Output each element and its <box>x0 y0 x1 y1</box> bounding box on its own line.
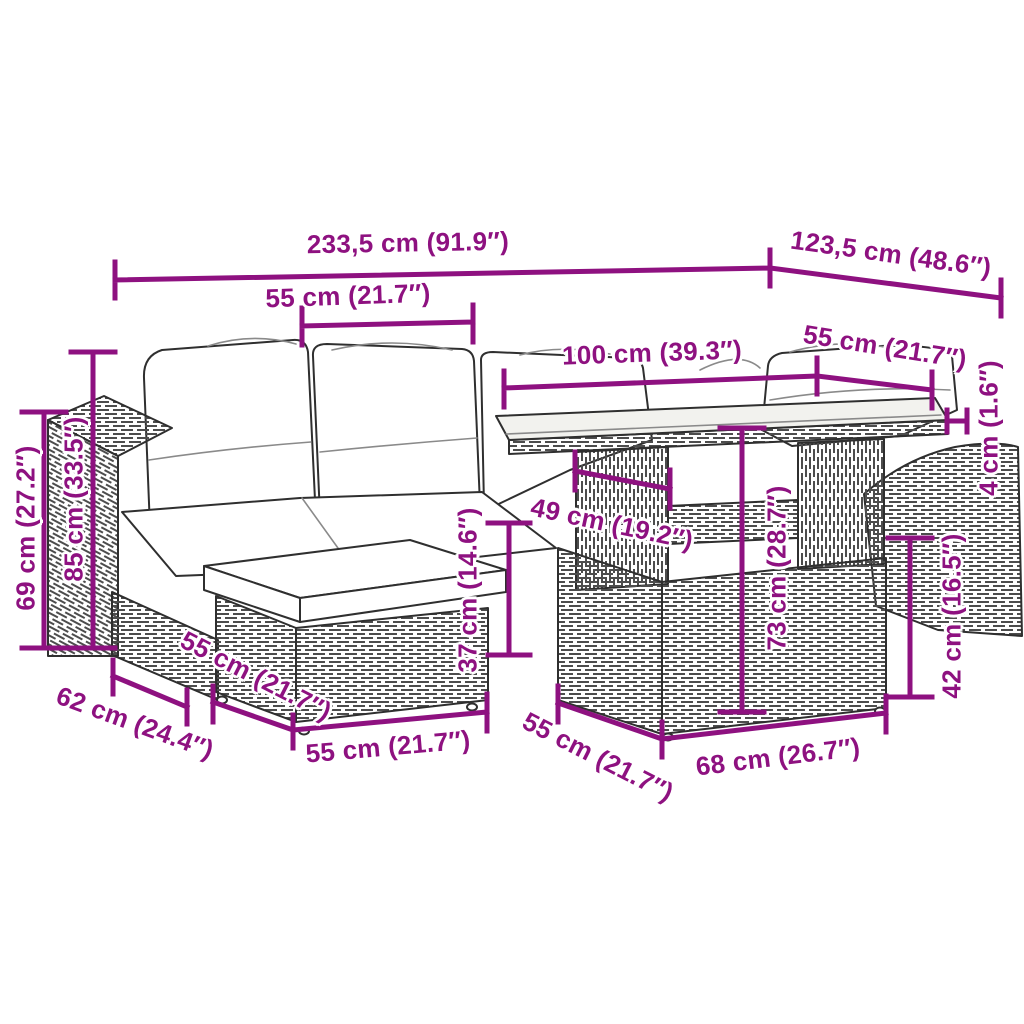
dim-label-seat-width-top: 55 cm (21.7″) <box>265 278 431 315</box>
dim-label-bench-depth: 55 cm (21.7″) <box>517 706 678 809</box>
dim-label-total-depth: 123,5 cm (48.6″) <box>789 225 994 284</box>
dim-label-tabletop-thickness: 4 cm (1.6″) <box>974 360 1005 496</box>
dim-label-back-height: 85 cm (33.5″) <box>59 416 90 581</box>
dim-label-table-length: 100 cm (39.3″) <box>562 334 743 371</box>
dim-label-arm-depth: 62 cm (24.4″) <box>52 680 218 766</box>
dim-label-under-table-width: 49 cm (19.2″) <box>528 492 696 557</box>
dim-label-seat-height: 42 cm (16.5″) <box>937 533 968 698</box>
dimension-labels: 233,5 cm (91.9″) 123,5 cm (48.6″) 55 cm … <box>0 0 1024 1024</box>
dim-label-right-seat-width: 55 cm (21.7″) <box>801 319 969 375</box>
dim-label-arm-height: 69 cm (27.2″) <box>11 445 42 610</box>
product-dimension-diagram: 233,5 cm (91.9″) 123,5 cm (48.6″) 55 cm … <box>0 0 1024 1024</box>
dim-label-ottoman-depth: 55 cm (21.7″) <box>175 625 336 728</box>
dim-label-table-height: 73 cm (28.7″) <box>762 485 793 650</box>
dim-label-total-length: 233,5 cm (91.9″) <box>307 226 510 261</box>
dim-label-ottoman-width: 55 cm (21.7″) <box>304 724 471 769</box>
dim-label-cushion-height: 37 cm (14.6″) <box>453 507 484 672</box>
dim-label-bench-width: 68 cm (26.7″) <box>694 732 862 783</box>
